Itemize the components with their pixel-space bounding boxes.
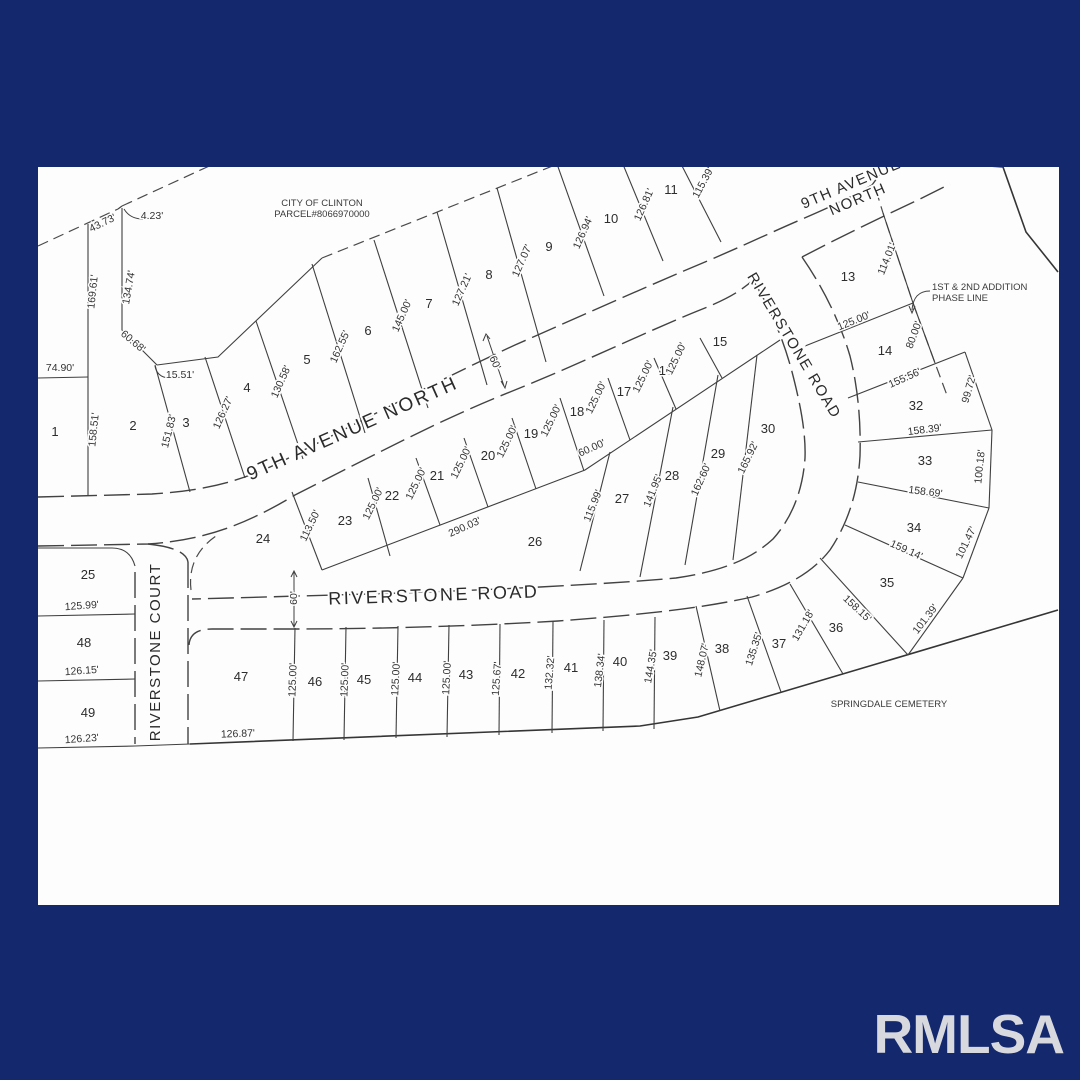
notch-outline: [157, 258, 322, 365]
note-phase-line-line0: 1ST & 2ND ADDITION: [932, 282, 1028, 293]
dimension-label: 125.00': [630, 359, 656, 395]
boundary-jog-4ft: [118, 206, 122, 209]
dimension-label: 158.39': [907, 422, 942, 438]
lot-number-11: 11: [664, 182, 678, 197]
map-labels: 1234567891011131415161718192021222324252…: [46, 155, 1028, 746]
lot-number-14: 14: [878, 343, 892, 358]
note-city-parcel-line1: PARCEL#8066970000: [274, 209, 369, 220]
lot-number-32: 32: [909, 398, 923, 413]
note-springdale-cemetery: SPRINGDALE CEMETERY: [831, 699, 948, 710]
lot-number-9: 9: [545, 239, 552, 254]
lot-number-23: 23: [338, 513, 352, 528]
lot-number-49: 49: [81, 705, 95, 720]
dimension-label: 126.94': [571, 215, 596, 251]
lot-number-35: 35: [880, 575, 894, 590]
markers-and-leaders: [124, 209, 930, 627]
lot-number-18: 18: [570, 404, 584, 419]
dimension-label: 101.47': [953, 525, 979, 561]
lot-number-10: 10: [604, 211, 618, 226]
lot-number-26: 26: [528, 534, 542, 549]
dimension-label: 4.23': [141, 210, 163, 222]
dimension-label: 145.00': [390, 298, 415, 334]
lot-number-38: 38: [715, 641, 729, 656]
dimension-label: 125.00': [538, 403, 564, 439]
street-label-riverstone-road-lower: RIVERSTONE ROAD: [328, 581, 540, 608]
dimension-label: 125.00': [338, 663, 351, 698]
dimension-label: 125.99': [64, 599, 99, 613]
street-label-riverstone-road-lower-line0: RIVERSTONE ROAD: [328, 581, 540, 608]
note-phase-line: 1ST & 2ND ADDITIONPHASE LINE: [932, 282, 1028, 304]
lot-number-34: 34: [907, 520, 921, 535]
dimension-label: 125.67': [490, 661, 504, 696]
dimension-label: 114.01': [875, 241, 899, 276]
dimension-label: 125.00': [494, 424, 520, 460]
dimension-label: 126.87': [221, 727, 256, 740]
dimension-label: 125.00': [663, 341, 689, 377]
street-label-riverstone-court-line0: RIVERSTONE COURT: [147, 563, 164, 741]
dimension-label: 99.72': [959, 374, 978, 404]
lot-number-19: 19: [524, 426, 538, 441]
dimension-label: 126.27': [211, 395, 236, 431]
road-edge-riverstone-inner: [192, 280, 805, 599]
lot-line-74: [38, 377, 88, 378]
dimension-label: 135.35': [743, 631, 765, 667]
dimension-label: 125.00': [286, 663, 299, 698]
rmlsa-watermark: RMLSA: [873, 1002, 1064, 1066]
dimension-label: 60.00': [576, 437, 607, 459]
note-city-parcel: CITY OF CLINTONPARCEL#8066970000: [274, 198, 369, 220]
dimension-label: 131.18': [790, 608, 817, 644]
lot-number-8: 8: [485, 267, 492, 282]
lot-number-22: 22: [385, 488, 399, 503]
lot-number-42: 42: [511, 666, 525, 681]
dimension-label: 15.51': [166, 369, 194, 381]
dimension-label: 158.15': [840, 593, 873, 625]
lot-number-2: 2: [129, 418, 136, 433]
street-label-riverstone-road-upper-line0: RIVERSTONE ROAD: [744, 270, 845, 422]
dimension-label: 125.00': [583, 380, 609, 416]
lot-number-47: 47: [234, 669, 248, 684]
lot-number-3: 3: [182, 415, 189, 430]
street-label-riverstone-road-upper: RIVERSTONE ROAD: [744, 270, 845, 422]
lot-number-27: 27: [615, 491, 629, 506]
dimension-label: 60': [288, 591, 300, 605]
dimension-label: 115.99': [581, 488, 605, 523]
dimension-label: 169.61': [85, 274, 101, 309]
lot-number-29: 29: [711, 446, 725, 461]
dimension-label: 115.39': [690, 165, 716, 200]
dimension-label: 100.18': [972, 449, 988, 484]
lot-number-24: 24: [256, 531, 270, 546]
dimension-label: 165.92': [735, 440, 761, 476]
dimension-label: 134.74': [120, 270, 138, 306]
lot-number-33: 33: [918, 453, 932, 468]
dimension-label: 60.68': [118, 328, 147, 355]
lot-line-33-east: [989, 430, 992, 508]
lot-number-37: 37: [772, 636, 786, 651]
dimension-label: 158.51': [86, 412, 102, 447]
dimension-label: 162.55': [328, 329, 353, 365]
lot-number-1: 1: [51, 424, 58, 439]
lot-lines: [38, 162, 992, 748]
lot-number-45: 45: [357, 672, 371, 687]
lot-number-20: 20: [481, 448, 495, 463]
lot-line-35-east: [908, 578, 963, 655]
lot-number-48: 48: [77, 635, 91, 650]
street-label-9th-avenue-north-top: 9TH AVENUENORTH: [799, 155, 911, 228]
dimension-label: 126.81': [632, 187, 657, 223]
dimension-label: 126.23': [64, 732, 99, 746]
boundary-north-dashed: [122, 162, 218, 206]
lot-48-49-divider: [38, 679, 135, 681]
dimension-label: 155.56': [887, 366, 923, 391]
lot-number-43: 43: [459, 667, 473, 682]
note-city-parcel-line0: CITY OF CLINTON: [281, 198, 363, 209]
lot-number-21: 21: [430, 468, 444, 483]
dimension-label: 125.00': [440, 660, 454, 695]
dimension-label: 138.34': [592, 653, 608, 688]
lot-number-30: 30: [761, 421, 775, 436]
dimension-label: 290.03': [447, 515, 483, 540]
lot-number-25: 25: [81, 567, 95, 582]
dimension-label: 159.14': [888, 538, 924, 563]
dimension-label: 151.83': [159, 413, 179, 449]
boundary-northeast-jog: [962, 164, 1058, 272]
lot-number-46: 46: [308, 674, 322, 689]
lot-number-13: 13: [841, 269, 855, 284]
lot-number-41: 41: [564, 660, 578, 675]
lot-25-48-divider: [38, 614, 135, 616]
dimension-label: 43.73': [87, 212, 118, 235]
lot-number-39: 39: [663, 648, 677, 663]
lot-number-5: 5: [303, 352, 310, 367]
dimension-label: 127.21': [450, 272, 475, 308]
lot-49-bottom: [38, 744, 190, 748]
dimension-label: 74.90': [46, 362, 74, 374]
dimension-label: 125.00': [360, 486, 386, 522]
dimension-label: 141.95': [641, 473, 665, 509]
road-edge-court-junction-fillet: [148, 544, 188, 562]
lot-number-40: 40: [613, 654, 627, 669]
dimension-label: 158.69': [908, 484, 943, 500]
note-phase-line-line1: PHASE LINE: [932, 293, 988, 304]
dimension-label: 113.50': [298, 508, 323, 543]
dimension-label: 132.32': [543, 655, 558, 690]
dimension-label: 162.60': [689, 462, 714, 498]
lot-number-28: 28: [665, 468, 679, 483]
lot-25-top: [38, 548, 135, 566]
dimension-label: 80.00': [904, 320, 925, 351]
dimension-label: 125.00': [836, 309, 872, 333]
dimension-label: 126.15': [64, 664, 99, 678]
street-label-riverstone-court: RIVERSTONE COURT: [147, 563, 164, 741]
plat-map-canvas: 1234567891011131415161718192021222324252…: [0, 0, 1080, 1080]
dimension-label: 125.00': [448, 445, 474, 481]
lot-number-17: 17: [617, 384, 631, 399]
lot-number-4: 4: [243, 380, 250, 395]
lot-number-44: 44: [408, 670, 422, 685]
lot-number-6: 6: [364, 323, 371, 338]
lot-number-36: 36: [829, 620, 843, 635]
note-springdale-cemetery-line0: SPRINGDALE CEMETERY: [831, 699, 948, 710]
dimension-label: 125.00': [389, 661, 403, 696]
dimension-label: 144.35': [642, 649, 660, 685]
lot-number-7: 7: [425, 296, 432, 311]
lot24-west-fillet: [191, 536, 216, 590]
lot-number-15: 15: [713, 334, 727, 349]
